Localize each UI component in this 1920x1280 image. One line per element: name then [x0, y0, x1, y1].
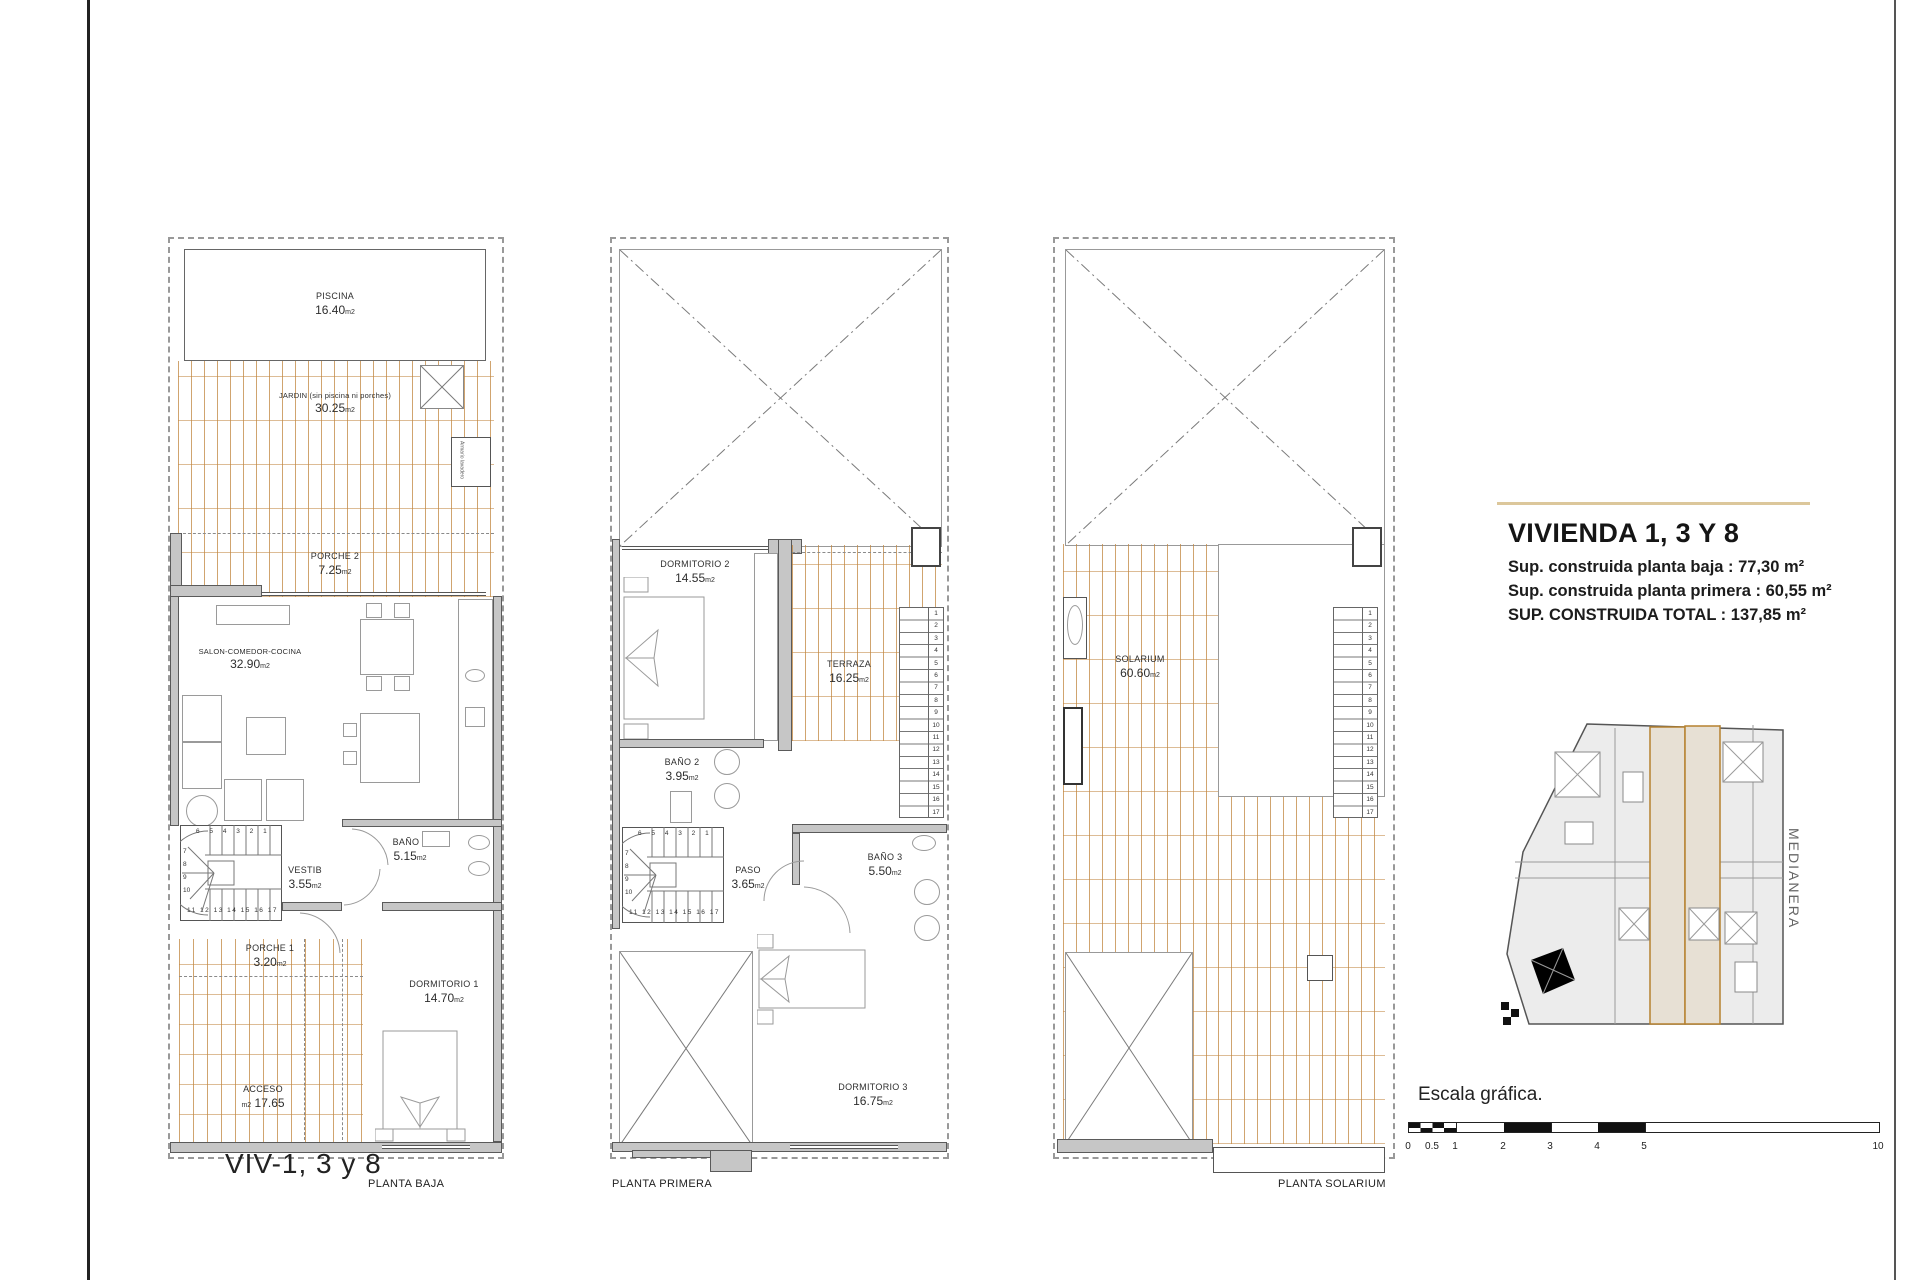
scale-tick-1: 1	[1452, 1141, 1458, 1152]
bottom-extension	[1213, 1147, 1385, 1173]
bath1-top-wall	[342, 819, 502, 827]
bath3-sink	[914, 915, 940, 941]
dorm3-window	[790, 1145, 898, 1149]
sofa	[182, 695, 222, 742]
x-mark-icon	[620, 952, 752, 1145]
stool	[343, 723, 357, 737]
room-label-piscina: PISCINA 16.40m2	[275, 291, 395, 318]
scale-bar	[1408, 1122, 1880, 1133]
title-vivienda: VIVIENDA 1, 3 Y 8	[1508, 518, 1739, 549]
void-over-garden	[1065, 249, 1385, 546]
door-arc	[762, 859, 806, 903]
footer-planta-solarium: PLANTA SOLARIUM	[1278, 1178, 1386, 1190]
stair-numbers-bottom: 11 12 13 14 15 16 17	[629, 909, 720, 916]
stair-numbers-left: 7 8 9 10	[625, 847, 632, 899]
sheet-right-border	[1894, 0, 1896, 1280]
dorm1-top-wall-left	[282, 902, 342, 911]
dorm1-window	[382, 1145, 470, 1149]
plan-planta-solarium: 1 2 3 4 5 6 7 8 9 10 11 12 13 14 15 16 1…	[1053, 237, 1395, 1159]
solarium-hatch-bottom	[1218, 797, 1385, 1144]
door-arc	[350, 827, 390, 867]
bottom-wall-left	[1057, 1139, 1213, 1153]
sideboard	[216, 605, 290, 625]
scale-checker-bottom	[1409, 1128, 1456, 1133]
dining-chair	[366, 676, 382, 691]
plan-planta-primera: DORMITORIO 2 14.55m2 TERRAZA 16.25m2 1 2…	[610, 237, 949, 1159]
dorm1-top-wall-right	[382, 902, 502, 911]
floorplan-sheet: { "page": { "big_label": "VIV-1, 3 y 8" …	[0, 0, 1920, 1280]
coffee-table	[246, 717, 286, 755]
void-over-garden	[619, 249, 942, 547]
plan-planta-baja: PISCINA 16.40m2 JARDIN (sin piscina ni p…	[168, 237, 504, 1159]
dorm2-closet-wall	[778, 539, 792, 751]
scale-title: Escala gráfica.	[1418, 1084, 1543, 1106]
entry-canopy-step	[710, 1150, 752, 1172]
terrace-closet	[911, 527, 941, 567]
scale-tick-line	[1551, 1123, 1552, 1132]
side-table	[186, 795, 218, 827]
access-dash-v2	[342, 939, 343, 1145]
title-rule	[1497, 502, 1810, 505]
bed	[757, 934, 873, 1026]
room-label-dorm3: DORMITORIO 3 16.75m2	[812, 1082, 934, 1109]
medianera-label: MEDIANERA	[1786, 828, 1802, 929]
sheet-left-border	[87, 0, 90, 1280]
room-label-vestib: VESTIB 3.55m2	[270, 865, 340, 892]
room-label-solarium: SOLARIUM 60.60m2	[1085, 654, 1195, 681]
scale-tick-5: 5	[1641, 1141, 1647, 1152]
room-label-salon: SALON-COMEDOR-COCINA 32.90m2	[170, 647, 330, 672]
bath2-sink	[714, 783, 740, 809]
closet	[754, 553, 778, 741]
bath1-sink	[422, 831, 450, 847]
armchair	[224, 779, 262, 821]
room-label-porche1: PORCHE 1 3.20m2	[210, 943, 330, 970]
stair-run-numbers: 1 2 3 4 5 6 7 8 9 10 11 12 13 14 15 16 1…	[1362, 607, 1378, 818]
kitchen-sink	[465, 669, 485, 682]
stair-numbers-top: 6 5 4 3 2 1	[196, 828, 271, 835]
scale-tick-0: 0	[1405, 1141, 1411, 1152]
door-arc	[802, 885, 852, 935]
room-label-acceso: ACCESO m2 17.65	[208, 1084, 318, 1111]
laundry-closet	[451, 437, 491, 487]
dorm2-window	[622, 546, 768, 550]
stair-run-numbers: 1 2 3 4 5 6 7 8 9 10 11 12 13 14 15 16 1…	[928, 607, 944, 818]
bed	[375, 1029, 467, 1142]
x-mark-icon	[1066, 250, 1384, 545]
scale-seg-black	[1504, 1123, 1551, 1132]
scale-tick-line	[1456, 1123, 1457, 1132]
room-label-jardin: JARDIN (sin piscina ni porches) 30.25m2	[225, 391, 445, 416]
laundry-closet-label: Armario lavadero	[458, 441, 464, 479]
room-label-bano3: BAÑO 3 5.50m2	[842, 852, 928, 879]
dining-chair	[366, 603, 382, 618]
x-mark-icon	[1066, 953, 1192, 1143]
toilet	[468, 835, 490, 850]
stair-closet	[1352, 527, 1382, 567]
stair-numbers-top: 6 5 4 3 2 1	[638, 830, 713, 837]
key-plan	[1495, 712, 1795, 1037]
sup-total: SUP. CONSTRUIDA TOTAL : 137,85 m²	[1508, 606, 1806, 625]
x-mark-icon	[620, 250, 941, 546]
salon-window	[262, 592, 486, 596]
bath3-wc	[912, 835, 936, 851]
terrace-stair-run	[899, 607, 929, 818]
scale-tick-2: 2	[1500, 1141, 1506, 1152]
left-wall	[612, 539, 620, 929]
bed	[616, 577, 716, 739]
dining-chair	[394, 603, 410, 618]
porch1-dash-top	[179, 976, 363, 977]
bath2-wc	[670, 791, 692, 823]
stool	[343, 751, 357, 765]
stair-numbers-left: 7 8 9 10	[183, 845, 190, 897]
scale-tick-05: 0.5	[1425, 1141, 1439, 1152]
room-label-dorm1: DORMITORIO 1 14.70m2	[388, 979, 500, 1006]
footer-planta-baja: PLANTA BAJA	[368, 1178, 444, 1190]
scale-tick-line	[1645, 1123, 1646, 1132]
scale-tick-3: 3	[1547, 1141, 1553, 1152]
solarium-stair-run	[1333, 607, 1363, 818]
dining-table	[360, 619, 414, 675]
bath2-top-wall	[619, 739, 764, 748]
sup-planta-primera: Sup. construida planta primera : 60,55 m…	[1508, 582, 1832, 601]
bath3-top-wall	[792, 824, 947, 833]
scale-tick-4: 4	[1594, 1141, 1600, 1152]
room-label-terraza: TERRAZA 16.25m2	[802, 659, 896, 686]
bath2-sink	[714, 749, 740, 775]
porch2-dashed-line	[178, 533, 494, 534]
bench	[1063, 707, 1083, 785]
scale-seg-black	[1598, 1123, 1645, 1132]
wash-trough-basin	[1067, 605, 1083, 645]
void-over-porch	[1065, 952, 1193, 1144]
room-label-porche2: PORCHE 2 7.25m2	[275, 551, 395, 578]
porch-wall-horizontal	[170, 585, 262, 597]
cooktop	[465, 707, 485, 727]
armchair	[266, 779, 304, 821]
stair-numbers-bottom: 11 12 13 14 15 16 17	[187, 907, 278, 914]
scale-tick-10: 10	[1872, 1141, 1883, 1152]
bath3-sink	[914, 879, 940, 905]
dining-chair	[394, 676, 410, 691]
salon-left-wall	[170, 596, 179, 826]
kitchen-island	[360, 713, 420, 783]
bidet	[468, 861, 490, 876]
right-wall	[493, 596, 502, 1142]
viv-label: VIV-1, 3 y 8	[225, 1148, 382, 1180]
sup-planta-baja: Sup. construida planta baja : 77,30 m²	[1508, 558, 1804, 577]
footer-planta-primera: PLANTA PRIMERA	[612, 1178, 712, 1190]
chimney-box	[1307, 955, 1333, 981]
void-over-porch	[619, 951, 753, 1146]
room-label-bano2: BAÑO 2 3.95m2	[640, 757, 724, 784]
sofa	[182, 742, 222, 789]
door-arc	[342, 867, 382, 907]
